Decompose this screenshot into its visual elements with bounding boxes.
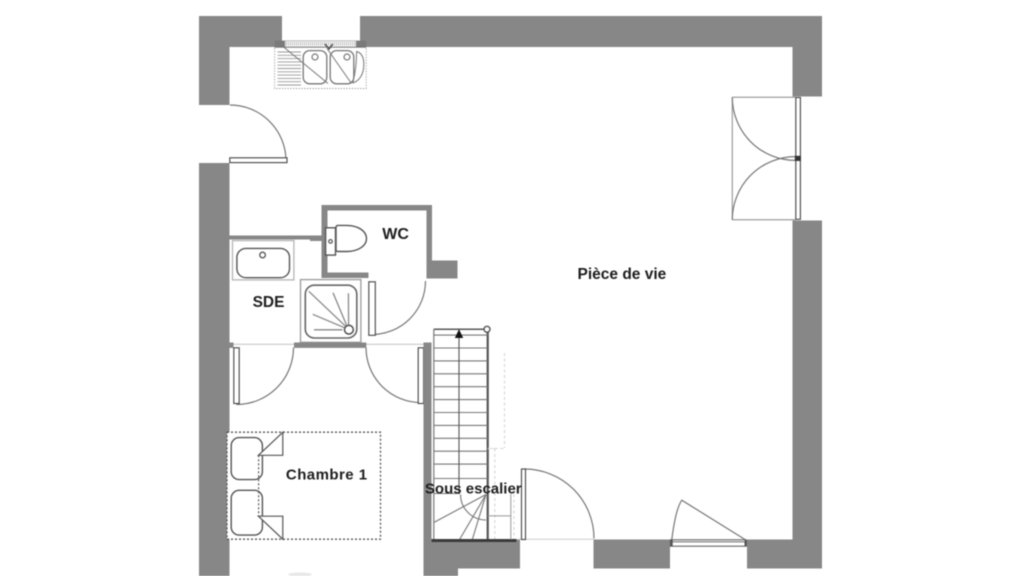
svg-text:Chambre 1: Chambre 1 xyxy=(286,467,368,484)
svg-text:WC: WC xyxy=(382,226,409,243)
svg-text:SDE: SDE xyxy=(253,294,285,311)
svg-text:Sous escalier: Sous escalier xyxy=(425,481,522,498)
svg-text:Pièce de vie: Pièce de vie xyxy=(578,266,667,283)
